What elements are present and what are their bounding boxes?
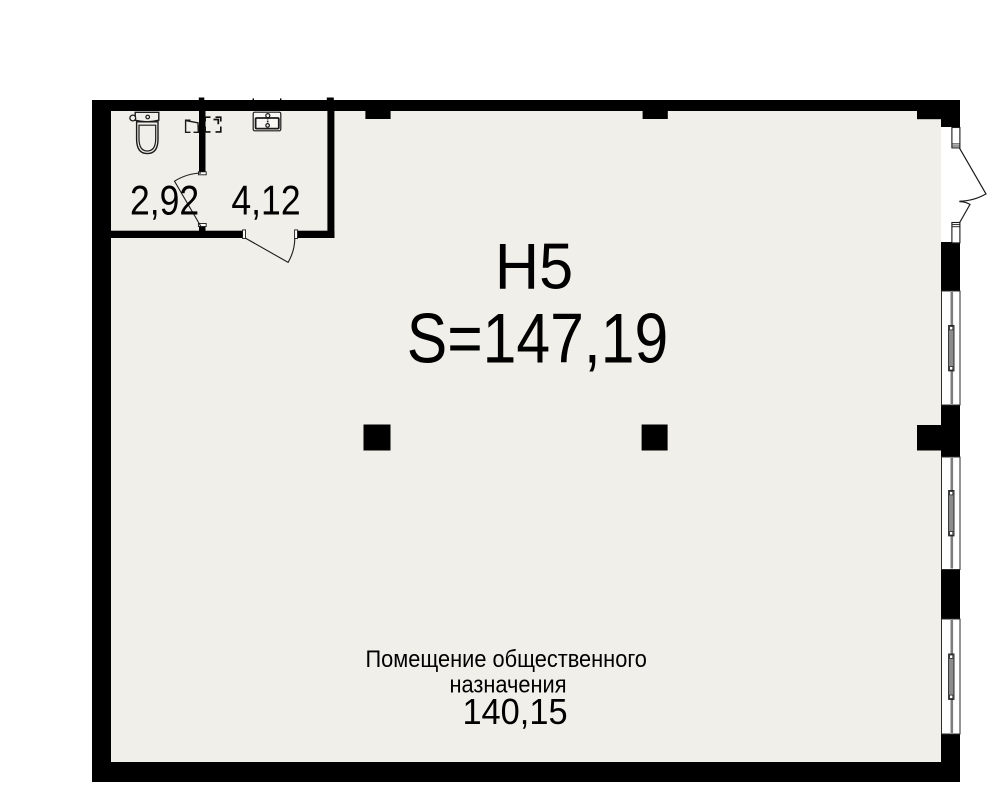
svg-text:Помещение общественного: Помещение общественного (366, 645, 647, 672)
svg-text:Н5: Н5 (495, 231, 573, 303)
svg-text:2,92: 2,92 (130, 178, 199, 224)
svg-text:4,12: 4,12 (231, 178, 300, 224)
svg-text:140,15: 140,15 (462, 692, 567, 732)
svg-text:S=147,19: S=147,19 (407, 298, 669, 377)
